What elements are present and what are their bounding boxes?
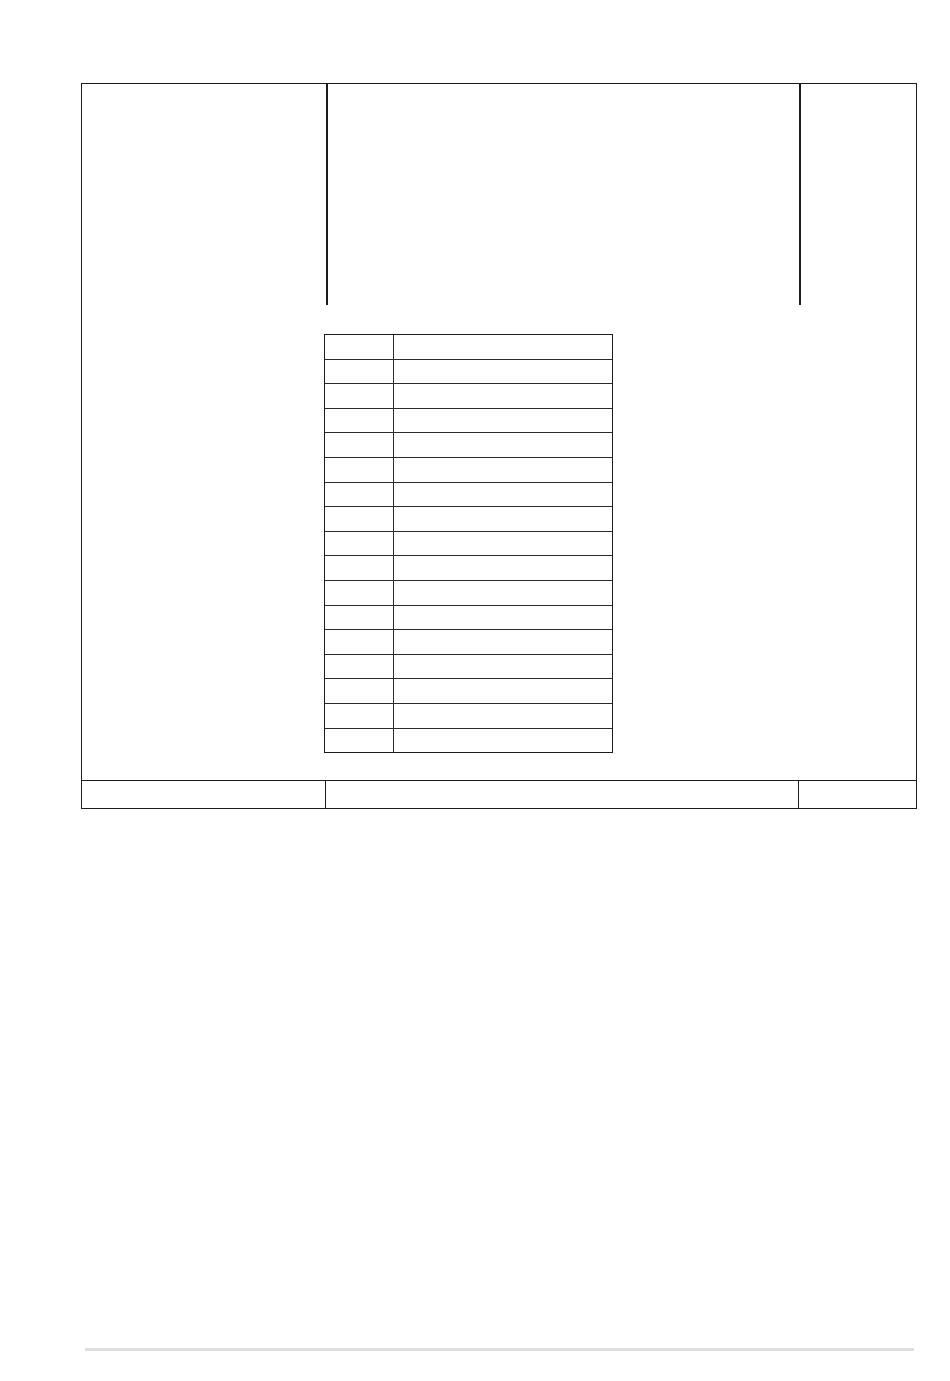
description-cell [394, 433, 612, 457]
item-number-cell [325, 655, 394, 679]
table-row [325, 483, 612, 508]
description-cell [394, 630, 612, 654]
description-cell [394, 556, 612, 580]
description-cell [394, 729, 612, 753]
header-center-cell [328, 84, 799, 305]
footer-center-cell [326, 781, 799, 808]
item-number-cell [325, 556, 394, 580]
table-row [325, 729, 612, 753]
description-cell [394, 507, 612, 531]
item-number-cell [325, 360, 394, 384]
description-cell [394, 679, 612, 703]
table-row [325, 655, 612, 680]
description-cell [394, 360, 612, 384]
item-number-cell [325, 630, 394, 654]
item-number-cell [325, 507, 394, 531]
header-left-cell [82, 84, 326, 305]
item-number-cell [325, 335, 394, 359]
description-cell [394, 532, 612, 556]
footer-right-cell [799, 781, 916, 808]
description-cell [394, 384, 612, 408]
table-row [325, 581, 612, 606]
item-number-cell [325, 458, 394, 482]
description-cell [394, 581, 612, 605]
item-number-cell [325, 606, 394, 630]
table-row [325, 532, 612, 557]
item-number-cell [325, 532, 394, 556]
table-row [325, 409, 612, 434]
parts-table [324, 334, 613, 753]
table-row [325, 384, 612, 409]
item-number-cell [325, 409, 394, 433]
footer-strip [82, 780, 916, 808]
item-number-cell [325, 433, 394, 457]
table-row [325, 507, 612, 532]
page-bottom-rule [85, 1348, 914, 1351]
description-cell [394, 335, 612, 359]
page [0, 0, 950, 1381]
table-row [325, 556, 612, 581]
table-row [325, 433, 612, 458]
description-cell [394, 409, 612, 433]
table-row [325, 335, 612, 360]
table-row [325, 606, 612, 631]
description-cell [394, 655, 612, 679]
description-cell [394, 483, 612, 507]
item-number-cell [325, 581, 394, 605]
table-row [325, 630, 612, 655]
header-right-cell [801, 84, 915, 305]
title-block-frame [81, 83, 917, 809]
item-number-cell [325, 729, 394, 753]
footer-left-cell [82, 781, 326, 808]
description-cell [394, 458, 612, 482]
item-number-cell [325, 704, 394, 728]
table-row [325, 679, 612, 704]
description-cell [394, 606, 612, 630]
table-row [325, 360, 612, 385]
table-row [325, 458, 612, 483]
item-number-cell [325, 384, 394, 408]
table-row [325, 704, 612, 729]
item-number-cell [325, 679, 394, 703]
item-number-cell [325, 483, 394, 507]
description-cell [394, 704, 612, 728]
